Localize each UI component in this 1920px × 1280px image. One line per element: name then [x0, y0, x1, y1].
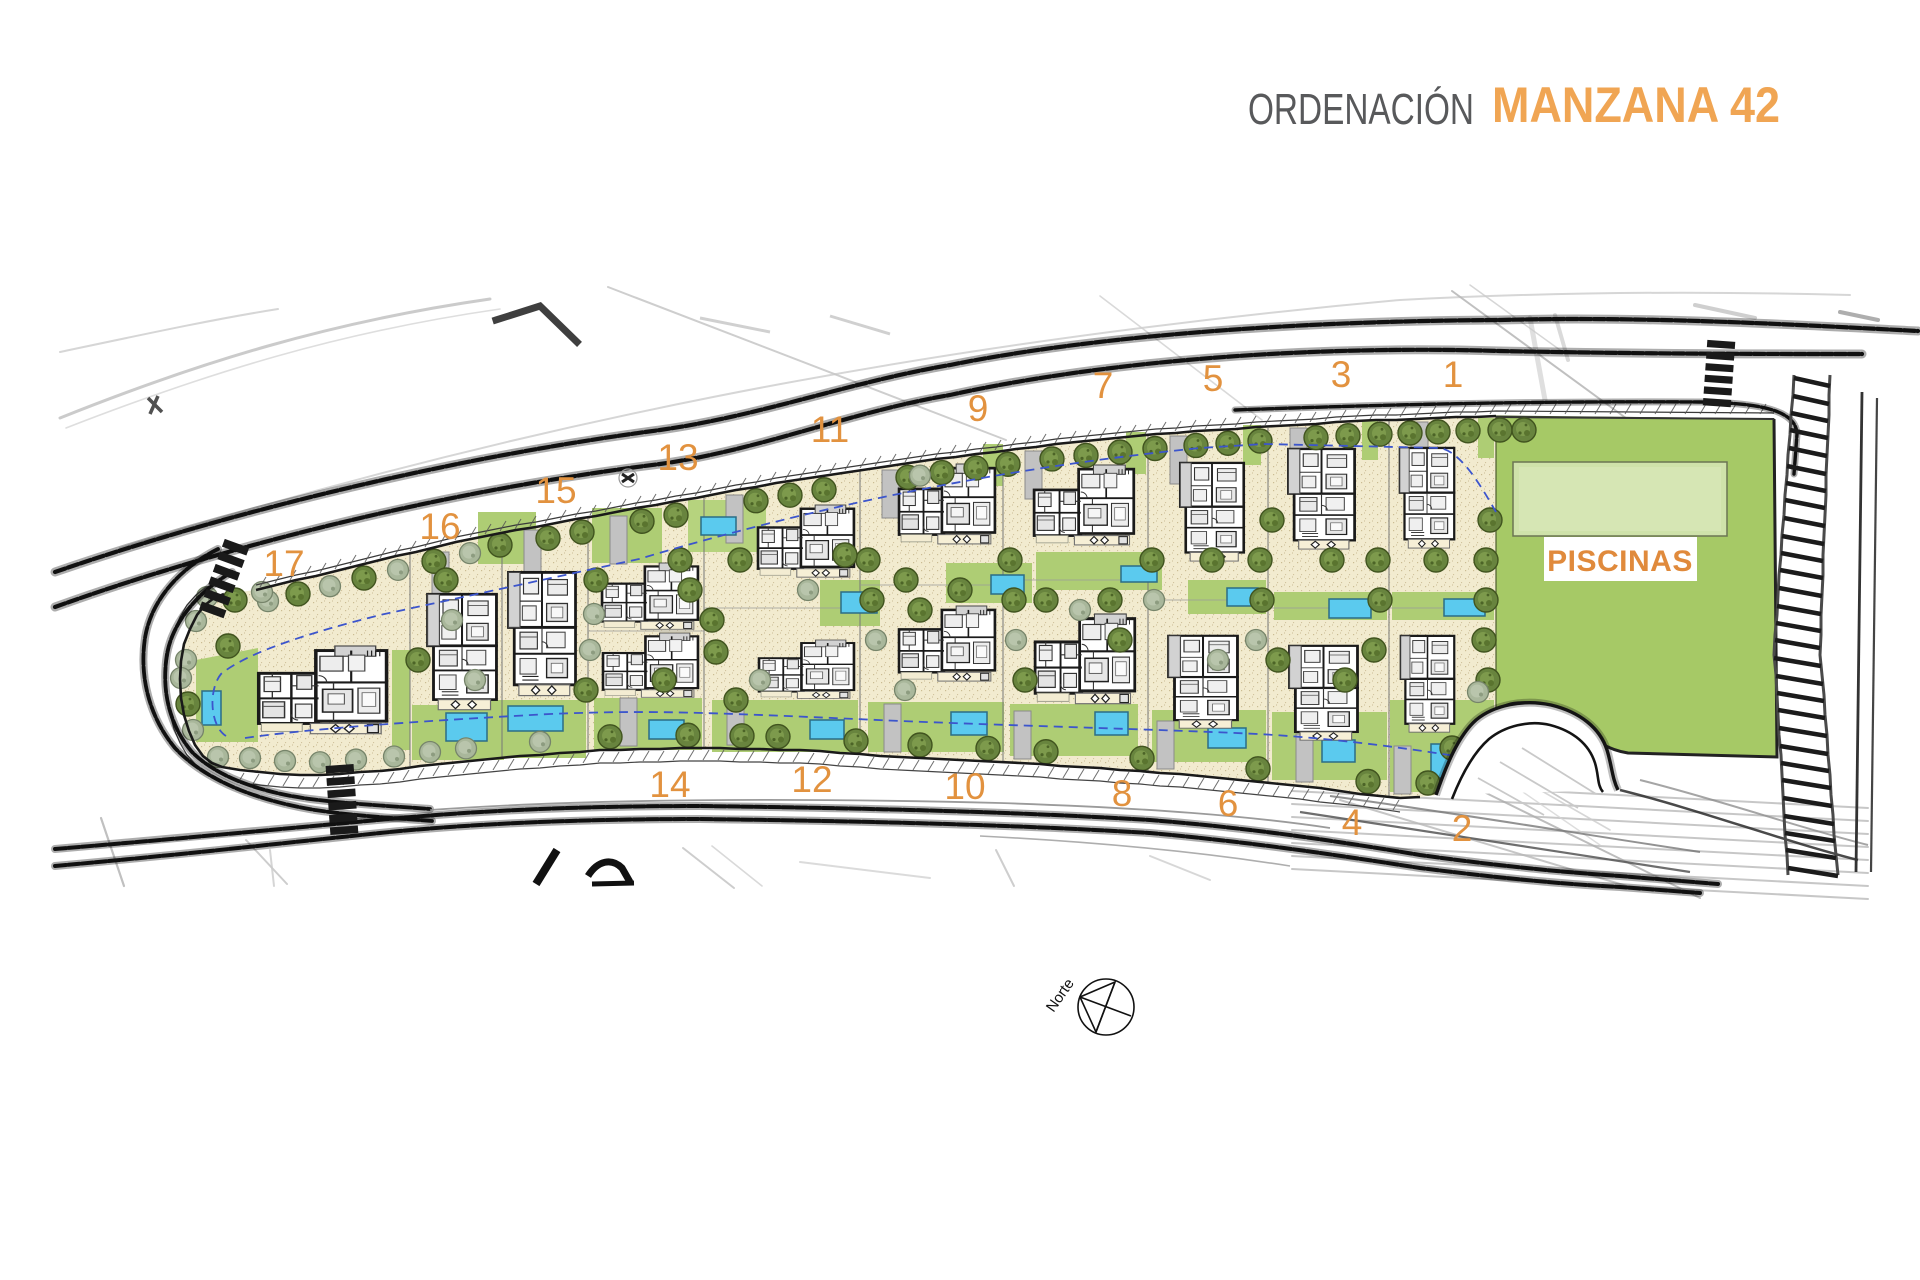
svg-text:14: 14	[649, 764, 690, 805]
svg-text:16: 16	[419, 506, 460, 547]
svg-text:13: 13	[657, 437, 698, 478]
svg-text:MANZANA 42: MANZANA 42	[1492, 77, 1780, 133]
svg-text:2: 2	[1452, 808, 1473, 849]
svg-text:10: 10	[944, 766, 985, 807]
svg-text:9: 9	[968, 388, 989, 429]
svg-text:1: 1	[1443, 354, 1464, 395]
svg-text:12: 12	[791, 759, 832, 800]
svg-text:8: 8	[1112, 773, 1133, 814]
svg-text:11: 11	[811, 409, 849, 450]
svg-text:15: 15	[535, 470, 576, 511]
svg-text:4: 4	[1342, 802, 1363, 843]
svg-text:17: 17	[263, 543, 304, 584]
svg-text:3: 3	[1331, 354, 1352, 395]
svg-text:7: 7	[1093, 365, 1114, 406]
svg-text:6: 6	[1218, 783, 1239, 824]
svg-text:PISCINAS: PISCINAS	[1547, 545, 1693, 578]
svg-text:ORDENACIÓN: ORDENACIÓN	[1248, 85, 1474, 134]
svg-text:5: 5	[1203, 358, 1224, 399]
